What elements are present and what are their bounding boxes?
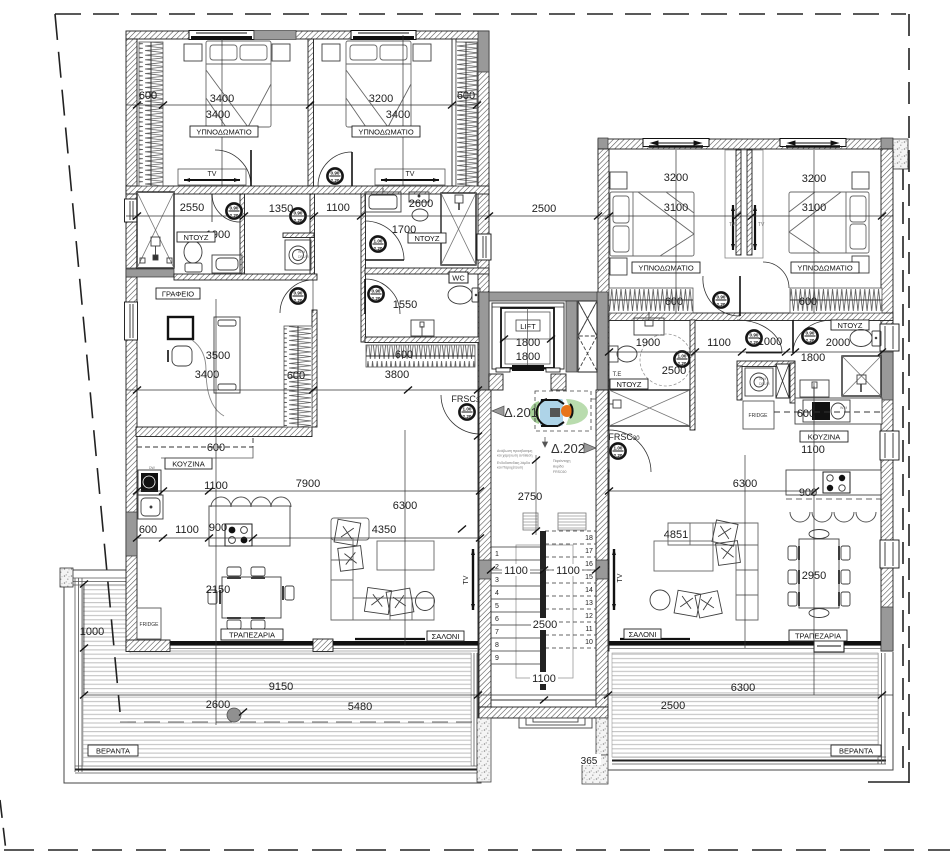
svg-text:ΥΠΝΟΔΩΜΑΤΙΟ: ΥΠΝΟΔΩΜΑΤΙΟ: [358, 128, 413, 137]
svg-text:6300: 6300: [393, 500, 417, 512]
svg-text:10: 10: [585, 639, 593, 646]
svg-text:12: 12: [585, 613, 593, 620]
svg-text:1100: 1100: [556, 565, 580, 577]
svg-text:W-M: W-M: [840, 406, 847, 410]
svg-text:2500: 2500: [533, 619, 557, 631]
svg-text:3400: 3400: [210, 93, 234, 105]
svg-text:Ανάβωση προσβασιμη: Ανάβωση προσβασιμη: [497, 449, 532, 453]
svg-text:600: 600: [799, 296, 817, 308]
svg-text:9: 9: [495, 655, 499, 662]
svg-text:TV: TV: [406, 171, 415, 178]
svg-text:900: 900: [209, 522, 227, 534]
svg-text:3400: 3400: [386, 109, 410, 121]
svg-text:4851: 4851: [664, 529, 688, 541]
svg-text:5: 5: [495, 603, 499, 610]
svg-text:5480: 5480: [348, 701, 372, 713]
svg-text:2500: 2500: [662, 365, 686, 377]
svg-text:TV: TV: [758, 222, 765, 228]
svg-text:3200: 3200: [369, 93, 393, 105]
svg-text:3100: 3100: [802, 202, 826, 214]
svg-text:ΝΤΟΥΖ: ΝΤΟΥΖ: [414, 234, 439, 243]
svg-text:6300: 6300: [731, 682, 755, 694]
svg-text:W-M: W-M: [759, 377, 766, 381]
svg-text:ΣΑΛΟΝΙ: ΣΑΛΟΝΙ: [629, 630, 657, 639]
svg-text:ΥΠΝΟΔΩΜΑΤΙΟ: ΥΠΝΟΔΩΜΑΤΙΟ: [797, 264, 852, 273]
svg-text:6: 6: [495, 616, 499, 623]
svg-text:3400: 3400: [206, 109, 230, 121]
svg-text:1800: 1800: [801, 352, 825, 364]
svg-text:TV: TV: [617, 573, 624, 582]
svg-text:2600: 2600: [206, 699, 230, 711]
svg-text:600: 600: [287, 370, 305, 382]
svg-text:1800: 1800: [516, 351, 540, 363]
svg-text:600: 600: [665, 296, 683, 308]
svg-text:4: 4: [495, 590, 499, 597]
svg-text:ΥΠΝΟΔΩΜΑΤΙΟ: ΥΠΝΟΔΩΜΑΤΙΟ: [638, 264, 693, 273]
svg-text:3100: 3100: [664, 202, 688, 214]
svg-text:2150: 2150: [206, 584, 230, 596]
svg-text:600: 600: [395, 349, 413, 361]
svg-text:LIFT: LIFT: [520, 322, 536, 331]
svg-text:8: 8: [495, 642, 499, 649]
svg-text:θυρίδα: θυρίδα: [553, 465, 564, 469]
svg-text:3: 3: [495, 577, 499, 584]
svg-text:Δ.202: Δ.202: [551, 441, 585, 456]
svg-text:13: 13: [585, 600, 593, 607]
svg-text:3400: 3400: [195, 369, 219, 381]
svg-text:1350: 1350: [269, 203, 293, 215]
svg-text:και χαμηλωτη αντίθεση: και χαμηλωτη αντίθεση: [497, 454, 532, 458]
svg-text:4350: 4350: [372, 524, 396, 536]
svg-text:FRIDGE: FRIDGE: [140, 622, 160, 628]
svg-text:T.E: T.E: [613, 372, 622, 378]
svg-text:600: 600: [139, 524, 157, 536]
svg-text:2000: 2000: [826, 337, 850, 349]
svg-text:11: 11: [585, 626, 592, 633]
svg-text:2500: 2500: [532, 203, 556, 215]
svg-text:1100: 1100: [532, 673, 556, 685]
svg-text:WC: WC: [452, 274, 465, 283]
svg-text:ΣΑΛΟΝΙ: ΣΑΛΟΝΙ: [432, 632, 460, 641]
svg-text:ΝΤΟΥΖ: ΝΤΟΥΖ: [837, 321, 862, 330]
svg-text:1900: 1900: [636, 337, 660, 349]
svg-text:600: 600: [797, 408, 815, 420]
svg-text:ΝΤΟΥΖ: ΝΤΟΥΖ: [616, 380, 641, 389]
svg-text:1100: 1100: [175, 524, 199, 536]
svg-text:1100: 1100: [504, 565, 528, 577]
svg-text:Δ.201: Δ.201: [504, 405, 538, 420]
svg-text:W-M: W-M: [298, 250, 305, 254]
svg-text:2950: 2950: [802, 570, 826, 582]
svg-text:7: 7: [495, 629, 499, 636]
svg-text:17: 17: [585, 548, 593, 555]
svg-text:1100: 1100: [801, 444, 825, 456]
svg-text:1000: 1000: [80, 626, 104, 638]
svg-text:DW: DW: [149, 466, 156, 470]
svg-text:ΚΟΥΖΙΝΑ: ΚΟΥΖΙΝΑ: [172, 460, 204, 469]
svg-text:600: 600: [139, 90, 157, 102]
svg-text:DRUM: DRUM: [298, 255, 309, 259]
svg-text:TV: TV: [463, 575, 470, 584]
svg-text:ΥΠΝΟΔΩΜΑΤΙΟ: ΥΠΝΟΔΩΜΑΤΙΟ: [196, 128, 251, 137]
svg-text:και Παροχέτευση: και Παροχέτευση: [497, 466, 523, 470]
svg-text:1: 1: [495, 551, 499, 558]
svg-text:ΝΤΟΥΖ: ΝΤΟΥΖ: [183, 233, 208, 242]
svg-text:2550: 2550: [180, 202, 204, 214]
svg-text:15: 15: [585, 574, 593, 581]
svg-text:18: 18: [585, 535, 593, 542]
svg-text:1100: 1100: [204, 480, 228, 492]
svg-text:TV: TV: [208, 171, 217, 178]
svg-text:1100: 1100: [326, 202, 350, 214]
svg-text:16: 16: [585, 561, 593, 568]
svg-text:TV: TV: [729, 222, 736, 228]
svg-text:ΤΡΑΠΕΖΑΡΙΑ: ΤΡΑΠΕΖΑΡΙΑ: [795, 632, 841, 641]
svg-text:ΒΕΡΑΝΤΑ: ΒΕΡΑΝΤΑ: [839, 747, 873, 756]
svg-text:ΚΟΥΖΙΝΑ: ΚΟΥΖΙΝΑ: [808, 433, 840, 442]
svg-text:1800: 1800: [516, 337, 540, 349]
svg-text:Παράνταχη: Παράνταχη: [553, 459, 571, 463]
svg-text:1000: 1000: [758, 336, 782, 348]
svg-text:3500: 3500: [206, 350, 230, 362]
svg-text:FRSC60: FRSC60: [553, 470, 566, 474]
svg-text:ΤΡΑΠΕΖΑΡΙΑ: ΤΡΑΠΕΖΑΡΙΑ: [229, 631, 275, 640]
svg-text:FRIDGE: FRIDGE: [749, 413, 769, 419]
svg-text:7900: 7900: [296, 478, 320, 490]
svg-text:6300: 6300: [733, 478, 757, 490]
svg-text:2750: 2750: [518, 491, 542, 503]
svg-text:DRUM: DRUM: [759, 382, 770, 386]
svg-text:ΒΕΡΑΝΤΑ: ΒΕΡΑΝΤΑ: [96, 747, 130, 756]
svg-text:2600: 2600: [409, 198, 433, 210]
svg-text:1100: 1100: [707, 337, 731, 349]
svg-text:1550: 1550: [393, 299, 417, 311]
svg-text:ΓΡΑΦΕΙΟ: ΓΡΑΦΕΙΟ: [162, 290, 194, 299]
svg-text:900: 900: [799, 487, 817, 499]
svg-text:600: 600: [457, 90, 475, 102]
svg-text:9150: 9150: [269, 681, 293, 693]
svg-text:365: 365: [581, 756, 598, 767]
svg-text:Ενδοδαπεδικη λάμδα: Ενδοδαπεδικη λάμδα: [497, 461, 530, 465]
svg-text:14: 14: [585, 587, 593, 594]
svg-text:3800: 3800: [385, 369, 409, 381]
svg-text:3200: 3200: [664, 172, 688, 184]
svg-text:2500: 2500: [661, 700, 685, 712]
svg-text:3200: 3200: [802, 173, 826, 185]
svg-text:600: 600: [207, 442, 225, 454]
